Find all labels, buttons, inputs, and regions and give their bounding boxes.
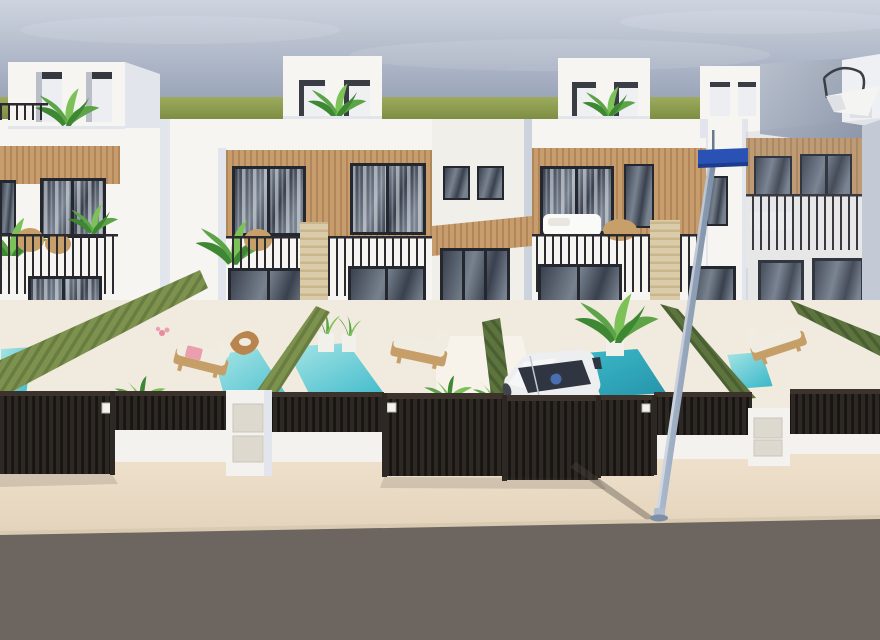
fence-slats [112,394,226,430]
parapet-shadow [558,116,650,119]
recess-shadow [710,82,730,87]
roofbox-b [283,56,382,119]
recess-shadow [738,82,756,87]
recess-shade [572,82,577,116]
gate-1 [0,391,112,474]
flower [156,327,160,331]
fence-post [502,395,507,481]
flower [165,328,170,333]
window [350,163,426,235]
window-glass [479,168,502,198]
recess-panel [738,82,756,116]
parapet-shadow [283,116,382,119]
recess-panel [710,82,730,116]
wood-band-top-trim [532,138,706,148]
fence-top-rail [790,389,880,394]
street [0,515,880,640]
window-glass [2,183,14,233]
roof-terrace-railing-a [0,103,48,120]
fence-top-rail [654,392,752,397]
house-number-plaque [642,404,650,412]
driver-figure [551,374,562,385]
gate-3-driveway [504,395,598,480]
gate-shadow [380,477,606,489]
roof-door-recess [572,82,596,116]
wood-band-top-trim [226,140,432,150]
roofbox-c [558,58,650,119]
road [0,519,880,640]
fence-panel [112,391,226,462]
meter-box-door [754,418,782,438]
villa-render [0,0,880,640]
driver-head [550,368,557,375]
window [443,166,470,200]
fence-slats [790,392,880,434]
fence-post [652,395,657,475]
roof-door-recess [86,72,112,122]
railing-top-rail [0,103,48,106]
pole-foot [650,515,668,522]
gate-top-rail [598,395,654,400]
flower [159,330,165,336]
planter [342,334,356,352]
window-mullion [386,166,389,232]
fence-post [596,396,601,478]
fence-post [110,391,115,475]
fence-post [382,393,387,477]
railing-bars [0,104,48,120]
gate-slats [0,394,112,474]
gate-top-rail [504,395,598,401]
parapet-shadow [8,126,125,129]
cloud [20,16,340,44]
house-number-plaque [387,403,396,412]
roofbox-d [700,66,762,130]
railing-top-rail [226,236,432,239]
window-mullion [267,169,270,233]
planter [318,332,334,352]
meter-box-door [754,440,782,456]
fence-base-wall [112,428,226,462]
window-glass [445,168,468,198]
window [624,164,654,228]
fence-base-wall [272,430,384,462]
recess-shade [299,80,304,116]
gate-4 [598,395,654,476]
window [0,180,16,236]
lamp-finial [712,130,715,152]
gate-top-rail [384,393,504,399]
window-glass [626,166,652,226]
railing-top-rail [0,234,118,237]
sofa-cushion [548,218,570,226]
pillar-shade [264,390,272,476]
fence-panel [790,389,880,454]
gate-top-rail [0,391,112,396]
fence-slats [272,395,384,432]
window-mullion [71,181,74,235]
fence-top-rail [272,392,384,397]
gate-slats [384,396,504,476]
render-canvas [0,0,880,640]
fence-base-wall [790,432,880,454]
window [477,166,504,200]
fence-panel [272,392,384,462]
meter-pillar-1 [226,390,272,476]
meter-box-door [233,436,263,462]
stool-hole [239,338,251,346]
fence-top-rail [112,391,226,396]
meter-pillar-2 [748,408,790,466]
recess-shade [86,72,92,122]
gate-2 [384,393,504,476]
meter-box-door [233,404,263,432]
